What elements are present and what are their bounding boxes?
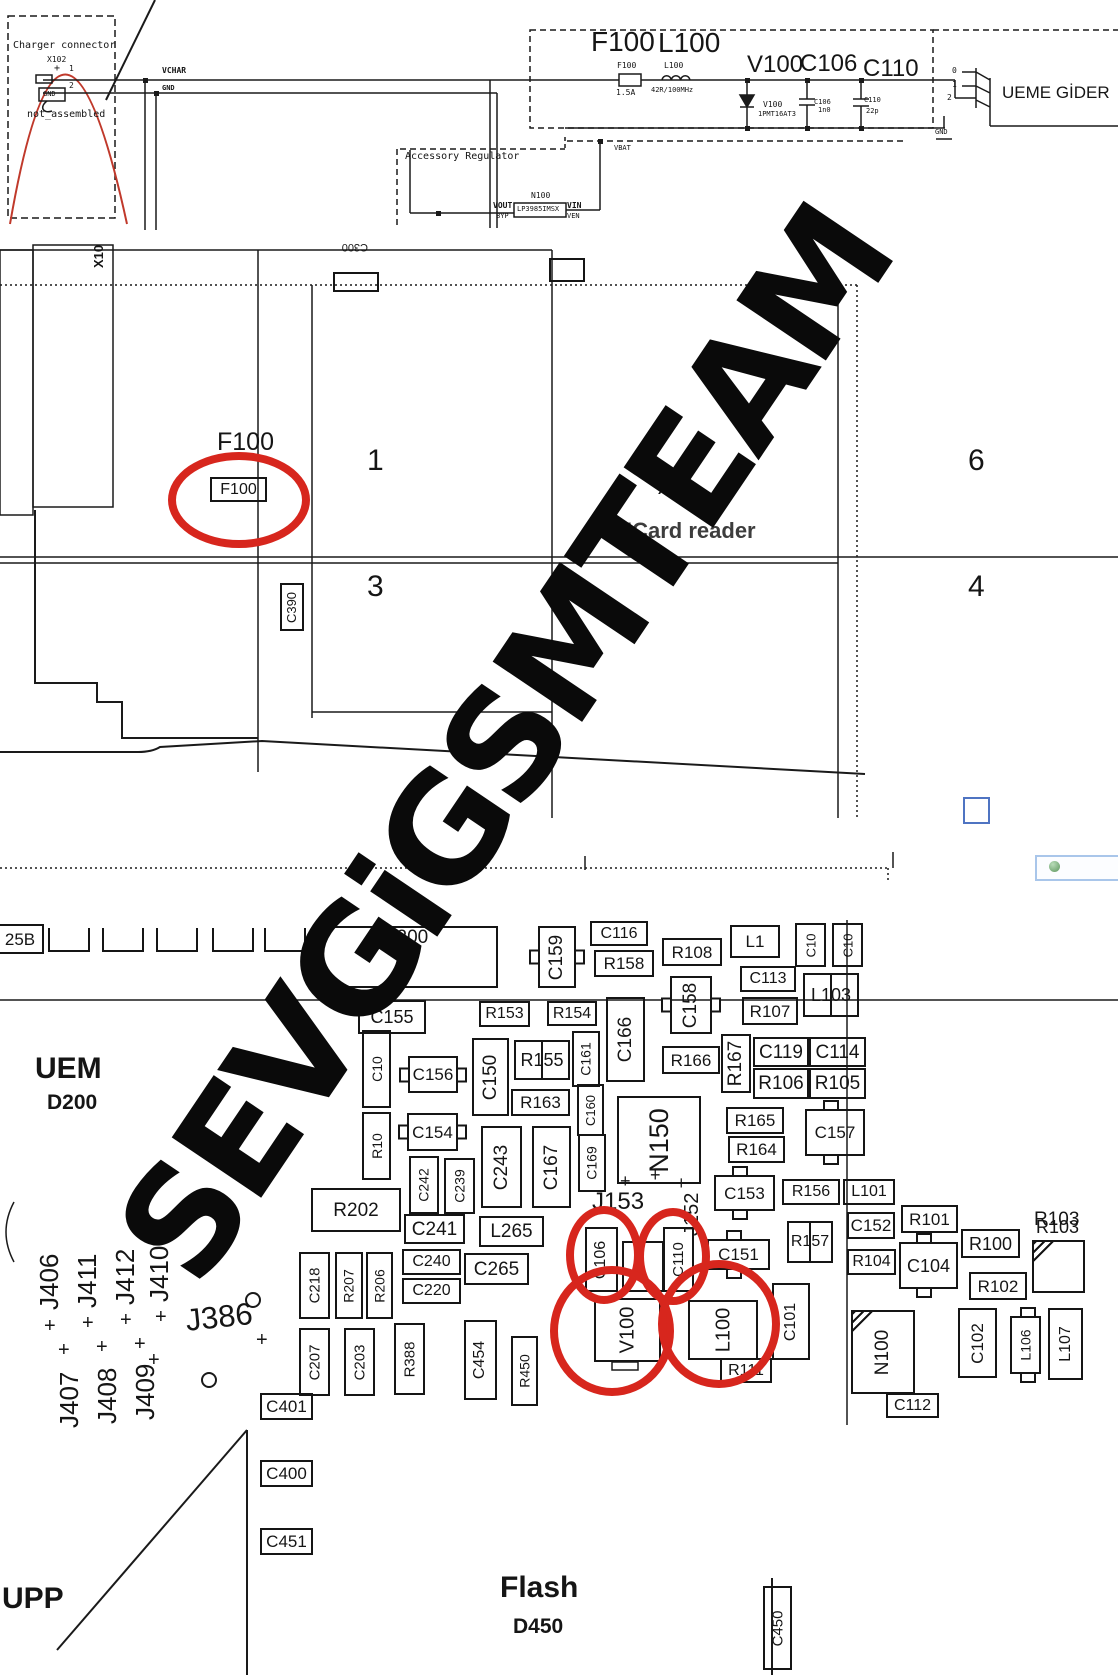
component-label: C119 [759,1043,803,1062]
label-item: + [58,1340,70,1360]
component-label: R108 [672,944,713,961]
component-r104: R104 [847,1249,896,1275]
component-c116: C116 [590,921,648,946]
component-c154: C154 [407,1113,458,1151]
label-upp: UPP [2,1584,64,1614]
label-v100: V100 [747,53,803,77]
component-label: R164 [736,1141,777,1158]
connector-pad [48,928,90,952]
component-r156: R156 [782,1179,840,1205]
component-r155: R155 [514,1040,570,1080]
label-1: 1 [952,81,957,89]
component-r103: R103 [1032,1240,1085,1293]
component-c158: C158 [670,976,712,1034]
label-1: 1 [367,446,384,476]
component-r108: R108 [662,938,722,966]
component-c102: C102 [958,1308,997,1378]
component-label: C102 [969,1323,986,1364]
label-d450: D450 [513,1616,563,1637]
component-c104: C104 [899,1242,958,1289]
component-label: C240 [412,1254,450,1270]
component-label: C152 [851,1217,892,1234]
component-c265: C265 [464,1253,529,1285]
component-label: C112 [894,1398,931,1414]
label-c110: C110 [864,97,881,104]
component-label: R206 [373,1269,387,1302]
component-c157: C157 [805,1109,865,1156]
component-c242: C242 [409,1156,439,1214]
component-label: C157 [815,1124,856,1141]
component-label: R202 [333,1201,378,1220]
component-label: R165 [735,1112,776,1129]
label-ueme-gi-der: UEME GİDER [1002,84,1110,101]
highlight-ellipse [168,452,310,548]
component-label: C167 [542,1144,561,1189]
label-c106: C106 [814,99,831,106]
component-25b: 25B [0,924,44,954]
component-label: R106 [758,1074,803,1093]
component-c150: C150 [472,1038,509,1116]
component-r165: R165 [726,1107,784,1134]
connector-pad [156,928,198,952]
label-c110: C110 [863,57,919,81]
component-c153: C153 [714,1175,775,1211]
label-j406: J406 [36,1254,62,1310]
component-r102: R102 [969,1272,1027,1300]
label-2: 2 [69,82,74,90]
label-1-5a: 1.5A [616,89,635,97]
label-f100: F100 [591,28,655,56]
label-2: 2 [947,94,952,102]
label-uem: UEM [35,1054,102,1084]
component-label: C150 [481,1054,500,1099]
component-r154: R154 [547,1001,597,1026]
label-42r-100mhz: 42R/100MHz [651,87,693,94]
component-r388: R388 [394,1323,425,1395]
component-r450: R450 [511,1336,538,1406]
blue-marker-square [963,797,990,824]
edge-arc [6,1202,14,1262]
component-r157: R157 [787,1221,833,1263]
component-box [549,258,585,282]
component-label: R207 [342,1269,356,1302]
component-r167: R167 [721,1034,751,1093]
component-label: R157 [791,1234,829,1250]
component-c241: C241 [404,1214,465,1244]
label-1: 1 [69,65,74,73]
component-label: C220 [412,1283,450,1299]
component-c207: C207 [299,1328,330,1396]
label-v100: V100 [763,101,782,109]
component-label: C265 [474,1260,519,1279]
component-label: R104 [852,1254,890,1270]
fuse-symbol [619,74,641,86]
component-c113: C113 [740,966,796,992]
component-label: R167 [727,1041,746,1086]
connector-pad [102,928,144,952]
component-label: 25B [5,931,35,948]
component-c220: C220 [402,1278,461,1304]
component-label: C203 [352,1344,367,1380]
label-j409: J409 [132,1364,158,1420]
component-label: C10 [841,933,854,957]
component-label: C242 [417,1168,431,1201]
component-label: C451 [266,1533,307,1550]
label-d200: D200 [47,1092,97,1113]
component-c390: C390 [280,583,304,631]
label-item: + [620,1172,631,1190]
component-c152: C152 [847,1212,895,1239]
component-label: C113 [749,971,786,987]
label-item: + [96,1337,108,1357]
component-r206: R206 [366,1252,393,1319]
label-0: 0 [952,67,957,75]
component-box [333,272,379,292]
component-c218: C218 [299,1252,330,1319]
component-label: C158 [682,982,701,1027]
component-l103: L103 [803,973,859,1017]
component-c112: C112 [886,1393,939,1418]
label-accessory-regulator: Accessory Regulator [405,152,519,162]
label-item: + [120,1310,132,1330]
component-c166: C166 [606,997,645,1082]
component-label: C450 [770,1610,785,1646]
label-gnd: GND [935,129,948,136]
component-c114: C114 [809,1037,866,1067]
component-label: C104 [907,1257,950,1275]
label-charger-connector: Charger connector [13,41,115,51]
component-label: R155 [520,1051,563,1069]
component-c159: C159 [538,926,576,988]
component-r106: R106 [753,1068,809,1099]
highlight-ellipse [658,1260,780,1388]
component-label: C169 [585,1146,599,1179]
component-label: R156 [792,1184,830,1200]
component-label: C160 [584,1094,597,1125]
component-r207: R207 [335,1252,363,1319]
label-1n0: 1n0 [818,107,831,114]
component-label: C218 [307,1268,322,1304]
diode-symbol [740,95,754,107]
schematic-page: SEVGiGSMTEAM F100C39025BR200C159C116R158… [0,0,1118,1675]
label-byp: BYP [496,213,509,220]
component-label: C101 [783,1302,799,1340]
component-label: L103 [811,986,851,1004]
label-vbat: VBAT [614,145,631,152]
label-j407: J407 [56,1372,82,1428]
component-label: C154 [412,1124,453,1141]
component-label: R153 [485,1006,523,1022]
component-c161: C161 [572,1031,600,1087]
label-item: + [676,1174,687,1192]
component-label: R163 [520,1094,561,1111]
component-label: R102 [978,1278,1019,1295]
label-vout: VOUT [493,202,512,210]
component-label: C243 [492,1144,511,1189]
component-label: C400 [266,1465,307,1482]
label-lp3985imsx: LP3985IMSX [517,206,559,213]
label-item: + [82,1313,94,1333]
red-curve [10,75,127,225]
label-6: 6 [968,446,985,476]
component-label: L265 [490,1222,532,1241]
component-label: R158 [604,955,645,972]
label-4: 4 [968,572,985,602]
component-label: C401 [266,1398,307,1415]
component-r164: R164 [728,1136,785,1163]
window-fragment [1035,855,1118,881]
component-l1: L1 [730,925,780,958]
pin-symbol [36,75,52,83]
component-r153: R153 [479,1001,530,1027]
component-label: R100 [969,1235,1012,1253]
component-label: L1 [746,933,765,950]
label-item: + [148,1350,160,1370]
component-c10: C10 [832,923,863,967]
component-label: L106 [1019,1329,1033,1360]
label-item: + [650,1166,661,1184]
label-c300: C300 [342,241,368,252]
component-c454: C454 [464,1320,497,1400]
component-r166: R166 [662,1046,720,1074]
label-gnd: GND [162,85,175,92]
component-label: C241 [412,1220,457,1239]
component-label: R450 [518,1354,532,1387]
component-c10: C10 [795,923,826,967]
label-1pmt16at3: 1PMT16AT3 [758,111,796,118]
label-item: + [134,1334,146,1354]
component-label: R101 [909,1211,950,1228]
label-item: + [256,1330,268,1350]
component-label: C239 [453,1169,467,1202]
component-l101: L101 [843,1179,895,1205]
component-r163: R163 [511,1089,570,1116]
label-x10: X10 [92,245,105,268]
label-vchar: VCHAR [162,67,186,75]
label-gnd: GND [43,91,56,98]
component-label: C153 [724,1185,765,1202]
component-label: L107 [1058,1326,1074,1362]
component-l265: L265 [479,1216,544,1247]
flash-chamfer [57,1430,247,1650]
label-c106: C106 [800,52,857,76]
component-label: C114 [815,1043,859,1062]
label-n100: N100 [531,192,550,200]
label-l100: L100 [658,29,720,57]
component-label: R154 [553,1006,591,1022]
component-label: C390 [286,591,299,622]
component-c160: C160 [577,1084,604,1136]
component-c243: C243 [481,1126,522,1208]
label-not-assembled: not_assembled [27,110,105,120]
component-label: C454 [473,1341,489,1379]
connector-symbol [976,68,990,126]
component-r100: R100 [961,1229,1020,1258]
component-l107: L107 [1048,1308,1083,1380]
component-label: C116 [600,926,637,942]
label-item: + [54,64,60,74]
label-l100: L100 [664,62,683,70]
component-c119: C119 [753,1037,809,1067]
component-c450: C450 [763,1586,792,1670]
component-label: C166 [616,1017,635,1062]
component-label: R388 [402,1341,417,1377]
component-label: C207 [307,1344,322,1380]
label-item: + [44,1316,56,1336]
component-l106: L106 [1010,1316,1041,1374]
component-c239: C239 [444,1158,475,1214]
component-label: C159 [548,934,567,979]
component-c167: C167 [532,1126,571,1208]
label-flash: Flash [500,1573,578,1603]
label-3: 3 [367,572,384,602]
component-n100: N100 [851,1310,915,1394]
component-label: L101 [851,1184,887,1200]
label-22p: 22p [866,108,879,115]
label-f100: F100 [617,62,636,70]
component-c169: C169 [578,1134,606,1192]
label-j408: J408 [94,1368,120,1424]
component-label: C10 [804,933,817,957]
label-ven: VEN [567,213,580,220]
highlight-ellipse [550,1266,674,1396]
component-label: R107 [750,1003,791,1020]
component-c203: C203 [344,1328,375,1396]
component-r158: R158 [594,950,654,977]
component-c451: C451 [260,1528,313,1555]
label-vin: VIN [567,202,581,210]
component-c240: C240 [402,1249,461,1275]
component-label: C161 [579,1042,593,1075]
component-c401: C401 [260,1393,313,1420]
component-label: R105 [815,1074,860,1093]
component-r105: R105 [809,1068,866,1099]
label-r103: R103 [1034,1210,1079,1229]
component-c400: C400 [260,1460,313,1487]
component-r101: R101 [901,1205,958,1233]
component-r107: R107 [742,997,798,1025]
component-label: N150 [645,1108,672,1173]
component-label: R166 [671,1052,712,1069]
component-label: N100 [873,1329,892,1374]
